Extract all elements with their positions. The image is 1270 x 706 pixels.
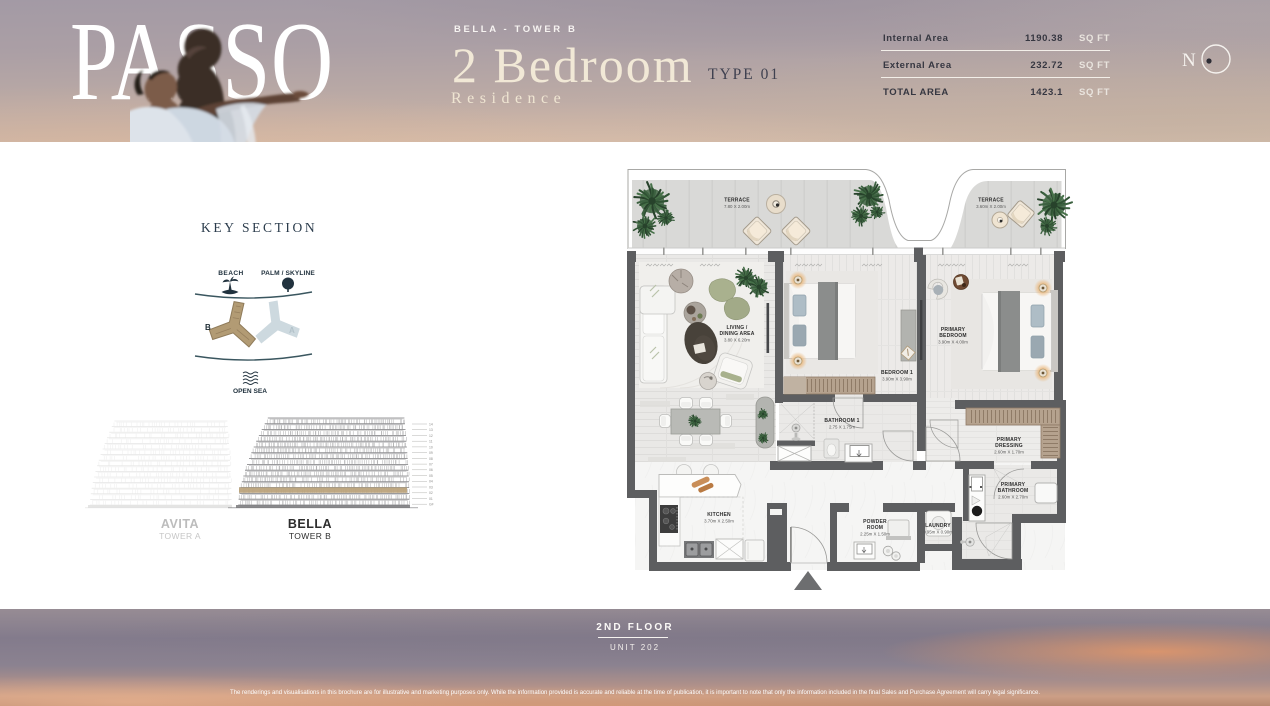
svg-text:13: 13 (429, 428, 433, 432)
svg-text:0.95m X 0.90m: 0.95m X 0.90m (923, 529, 953, 534)
svg-text:AVITA: AVITA (161, 517, 199, 531)
svg-text:POWDER: POWDER (863, 519, 887, 525)
svg-text:08: 08 (429, 457, 433, 461)
svg-text:B: B (205, 323, 211, 332)
svg-text:12: 12 (429, 434, 433, 438)
svg-text:14: 14 (429, 422, 433, 426)
svg-text:LIVING /: LIVING / (726, 325, 747, 331)
svg-text:02: 02 (429, 491, 433, 495)
svg-text:PALM / SKYLINE: PALM / SKYLINE (261, 270, 315, 277)
svg-text:05: 05 (429, 474, 433, 478)
svg-text:2.60m X 2.70m: 2.60m X 2.70m (998, 495, 1028, 500)
svg-text:11: 11 (429, 440, 433, 444)
svg-text:7.80 X 2.00m: 7.80 X 2.00m (724, 204, 750, 209)
svg-text:PRIMARY: PRIMARY (1001, 482, 1026, 488)
svg-text:GF: GF (429, 503, 434, 507)
svg-text:BEDROOM 1: BEDROOM 1 (881, 370, 913, 376)
svg-text:2.60m X 1.70m: 2.60m X 1.70m (994, 450, 1024, 455)
svg-text:BEDROOM: BEDROOM (939, 333, 967, 339)
svg-text:3.90m X 4.00m: 3.90m X 4.00m (938, 340, 968, 345)
svg-text:2.75 X 1.75m: 2.75 X 1.75m (829, 424, 855, 429)
svg-text:TOWER B: TOWER B (289, 531, 331, 540)
svg-text:BEACH: BEACH (218, 270, 243, 277)
svg-text:2.25m X 1.50m: 2.25m X 1.50m (860, 532, 890, 537)
svg-text:DRESSING: DRESSING (995, 443, 1023, 449)
svg-text:01: 01 (429, 497, 433, 501)
svg-text:N: N (1182, 50, 1196, 71)
svg-text:07: 07 (429, 463, 433, 467)
svg-text:LAUNDRY: LAUNDRY (925, 523, 951, 529)
svg-text:06: 06 (429, 468, 433, 472)
svg-text:BATHROOM 1: BATHROOM 1 (824, 418, 859, 424)
svg-text:PRIMARY: PRIMARY (997, 437, 1022, 443)
svg-text:09: 09 (429, 451, 433, 455)
svg-text:04: 04 (429, 480, 433, 484)
svg-text:TOWER A: TOWER A (159, 531, 201, 540)
svg-text:TERRACE: TERRACE (724, 198, 750, 204)
svg-text:3.70m X 2.50m: 3.70m X 2.50m (704, 518, 734, 523)
svg-text:OPEN SEA: OPEN SEA (233, 388, 267, 395)
svg-text:PRIMARY: PRIMARY (941, 327, 966, 333)
svg-text:3.80 X 6.20m: 3.80 X 6.20m (724, 338, 750, 343)
svg-text:TERRACE: TERRACE (978, 198, 1004, 204)
svg-text:BELLA: BELLA (288, 517, 332, 531)
svg-text:ROOM: ROOM (867, 525, 883, 531)
svg-text:A: A (289, 326, 295, 335)
svg-text:DINING AREA: DINING AREA (719, 331, 754, 337)
svg-text:KITCHEN: KITCHEN (707, 512, 731, 518)
svg-text:10: 10 (429, 445, 433, 449)
svg-text:03: 03 (429, 485, 433, 489)
svg-text:3.90m X 3.90m: 3.90m X 3.90m (882, 376, 912, 381)
svg-text:3.60m X 2.00m: 3.60m X 2.00m (976, 204, 1006, 209)
svg-text:BATHROOM: BATHROOM (998, 488, 1029, 494)
